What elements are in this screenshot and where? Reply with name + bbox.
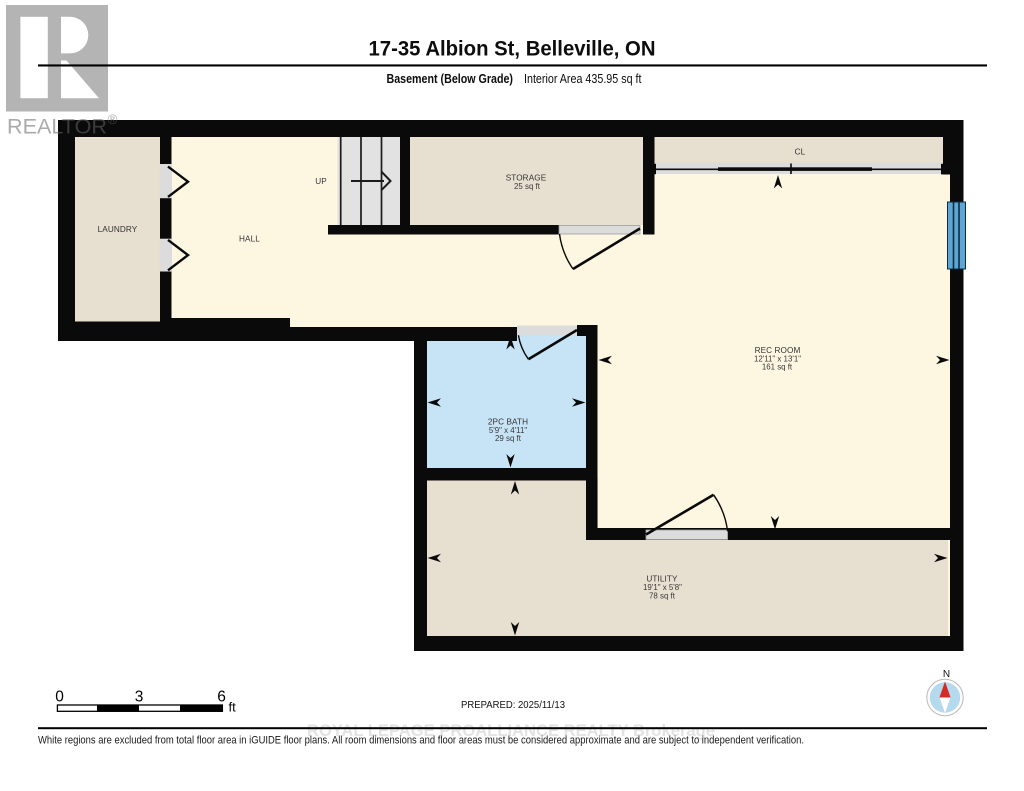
svg-text:UP: UP [315, 177, 327, 186]
svg-text:17-35 Albion St, Belleville, O: 17-35 Albion St, Belleville, ON [369, 36, 656, 61]
svg-text:Interior Area 435.95 sq ft: Interior Area 435.95 sq ft [524, 71, 642, 86]
svg-text:PREPARED: 2025/11/13: PREPARED: 2025/11/13 [461, 700, 565, 711]
svg-text:25 sq ft: 25 sq ft [514, 182, 541, 191]
svg-text:Basement (Below Grade): Basement (Below Grade) [387, 71, 514, 86]
svg-text:ft: ft [229, 700, 237, 715]
svg-text:N: N [943, 669, 950, 680]
svg-text:3: 3 [135, 689, 144, 706]
svg-text:161 sq ft: 161 sq ft [762, 363, 793, 372]
svg-text:REALTOR: REALTOR [7, 115, 107, 139]
svg-text:LAUNDRY: LAUNDRY [98, 225, 138, 234]
svg-text:78 sq ft: 78 sq ft [649, 591, 676, 600]
svg-text:0: 0 [55, 689, 64, 706]
svg-text:®: ® [108, 112, 118, 127]
svg-text:CL: CL [795, 148, 806, 157]
svg-text:6: 6 [217, 689, 226, 706]
svg-text:HALL: HALL [239, 235, 260, 244]
svg-text:White regions are excluded fro: White regions are excluded from total fl… [38, 735, 804, 747]
svg-text:29 sq ft: 29 sq ft [495, 434, 522, 443]
